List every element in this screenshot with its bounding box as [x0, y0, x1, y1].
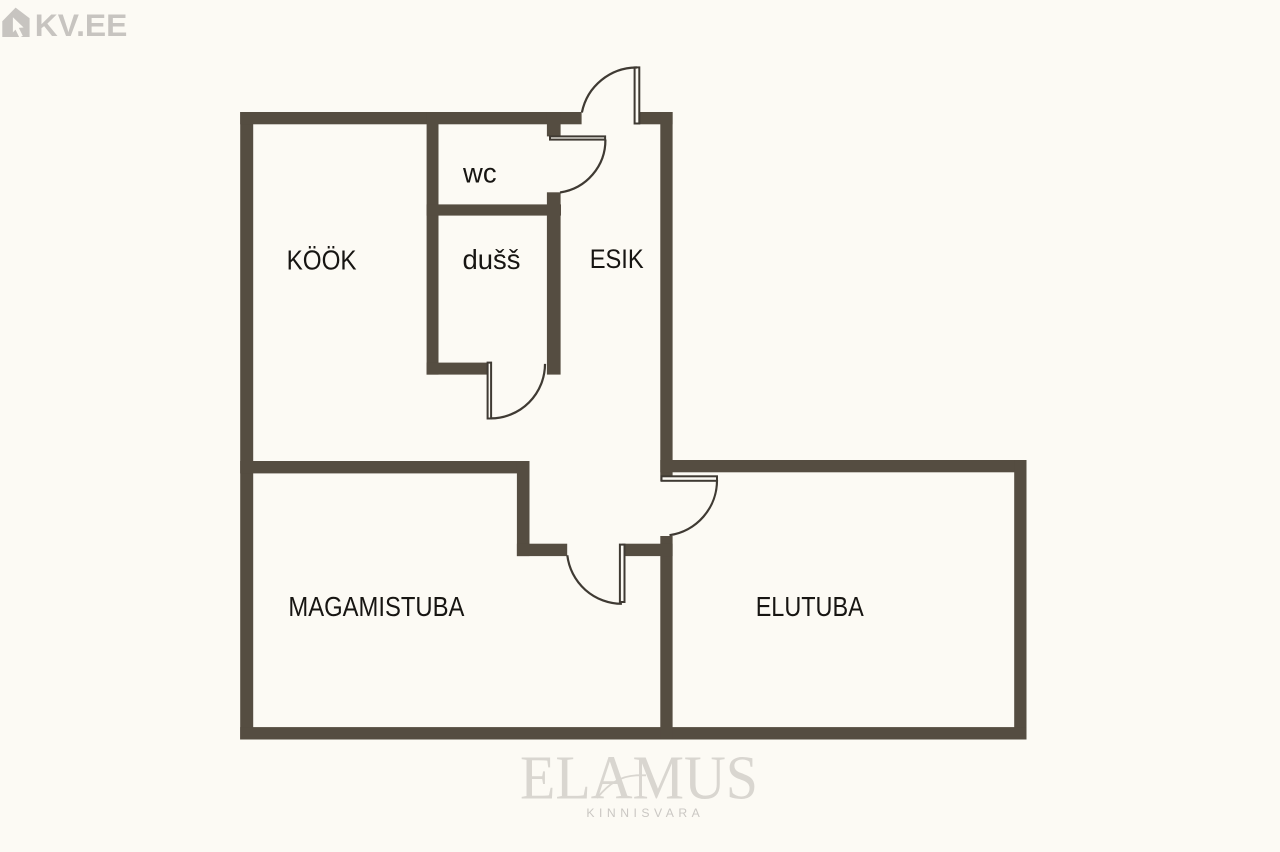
svg-text:dušš: dušš — [463, 244, 521, 275]
svg-text:ELAMUS: ELAMUS — [520, 745, 758, 813]
svg-text:MAGAMISTUBA: MAGAMISTUBA — [288, 591, 464, 622]
svg-text:wc: wc — [462, 158, 496, 189]
svg-text:ELUTUBA: ELUTUBA — [756, 591, 864, 622]
svg-text:ESIK: ESIK — [590, 244, 644, 274]
svg-text:KINNISVARA: KINNISVARA — [586, 806, 704, 820]
svg-text:KV.EE: KV.EE — [35, 7, 128, 43]
svg-text:KÖÖK: KÖÖK — [287, 245, 357, 276]
